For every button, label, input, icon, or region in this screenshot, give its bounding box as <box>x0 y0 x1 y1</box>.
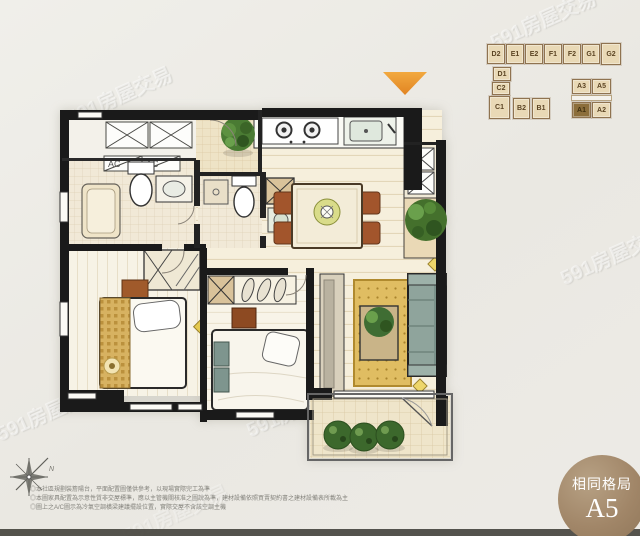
unit-box-e2: E2 <box>525 44 543 64</box>
note-line: ◎本社區規劃裝簷陽台，平面配置圖僅供參考，以現場實際完工為準 <box>30 486 348 495</box>
unit-box-a1-highlighted: A1 <box>572 102 591 118</box>
orange-triangle-marker <box>383 72 427 95</box>
unit-box-g2: G2 <box>601 43 621 65</box>
compass-north-label: N <box>49 466 54 473</box>
unit-box-d2: D2 <box>487 44 505 64</box>
unit-box-f1: F1 <box>544 44 562 64</box>
unit-box-d1: D1 <box>493 67 511 81</box>
unit-box-f2: F2 <box>563 44 581 64</box>
right-plant <box>405 199 447 241</box>
layout-badge: 相同格局 A5 <box>558 455 640 536</box>
unit-map-gap <box>571 95 612 101</box>
unit-box-e1: E1 <box>506 44 524 64</box>
bottom-edge-strip <box>0 529 640 536</box>
badge-title: 相同格局 <box>572 474 632 494</box>
unit-box-a2: A2 <box>592 102 611 118</box>
unit-box-b1: B1 <box>532 98 550 119</box>
unit-box-c2: C2 <box>492 82 510 95</box>
floorplan-image: 591房屋交易 591房屋交易 591房屋交易 591房屋交易 591房屋交易 … <box>0 0 640 536</box>
badge-unit: A5 <box>586 493 619 524</box>
unit-box-b2: B2 <box>513 98 530 119</box>
stove <box>262 118 338 144</box>
entry-plant <box>221 117 255 157</box>
unit-box-g1: G1 <box>582 44 600 64</box>
note-line: ◎本圖家具配置為示意性質非交屋標準，應以主管機關核准之圖說為準，建材設備依照買賣… <box>30 495 348 504</box>
kitchen <box>254 114 404 148</box>
unit-box-c1: C1 <box>489 96 510 119</box>
unit-box-a5: A5 <box>592 79 611 94</box>
nightstand <box>232 308 256 328</box>
pillow <box>132 299 181 332</box>
note-line: ◎圖上之A/C圖示為冷氣空調橫梁建議擺設位置，實際交屋不含該空調主機 <box>30 504 348 513</box>
disclaimer-notes: ◎本社區規劃裝簷陽台，平面配置圖僅供參考，以現場實際完工為準 ◎本圖家具配置為示… <box>30 486 348 513</box>
watermark: 591房屋交易 <box>555 218 640 291</box>
unit-box-a3: A3 <box>572 79 591 94</box>
floor-plan: AC AC <box>58 104 458 464</box>
